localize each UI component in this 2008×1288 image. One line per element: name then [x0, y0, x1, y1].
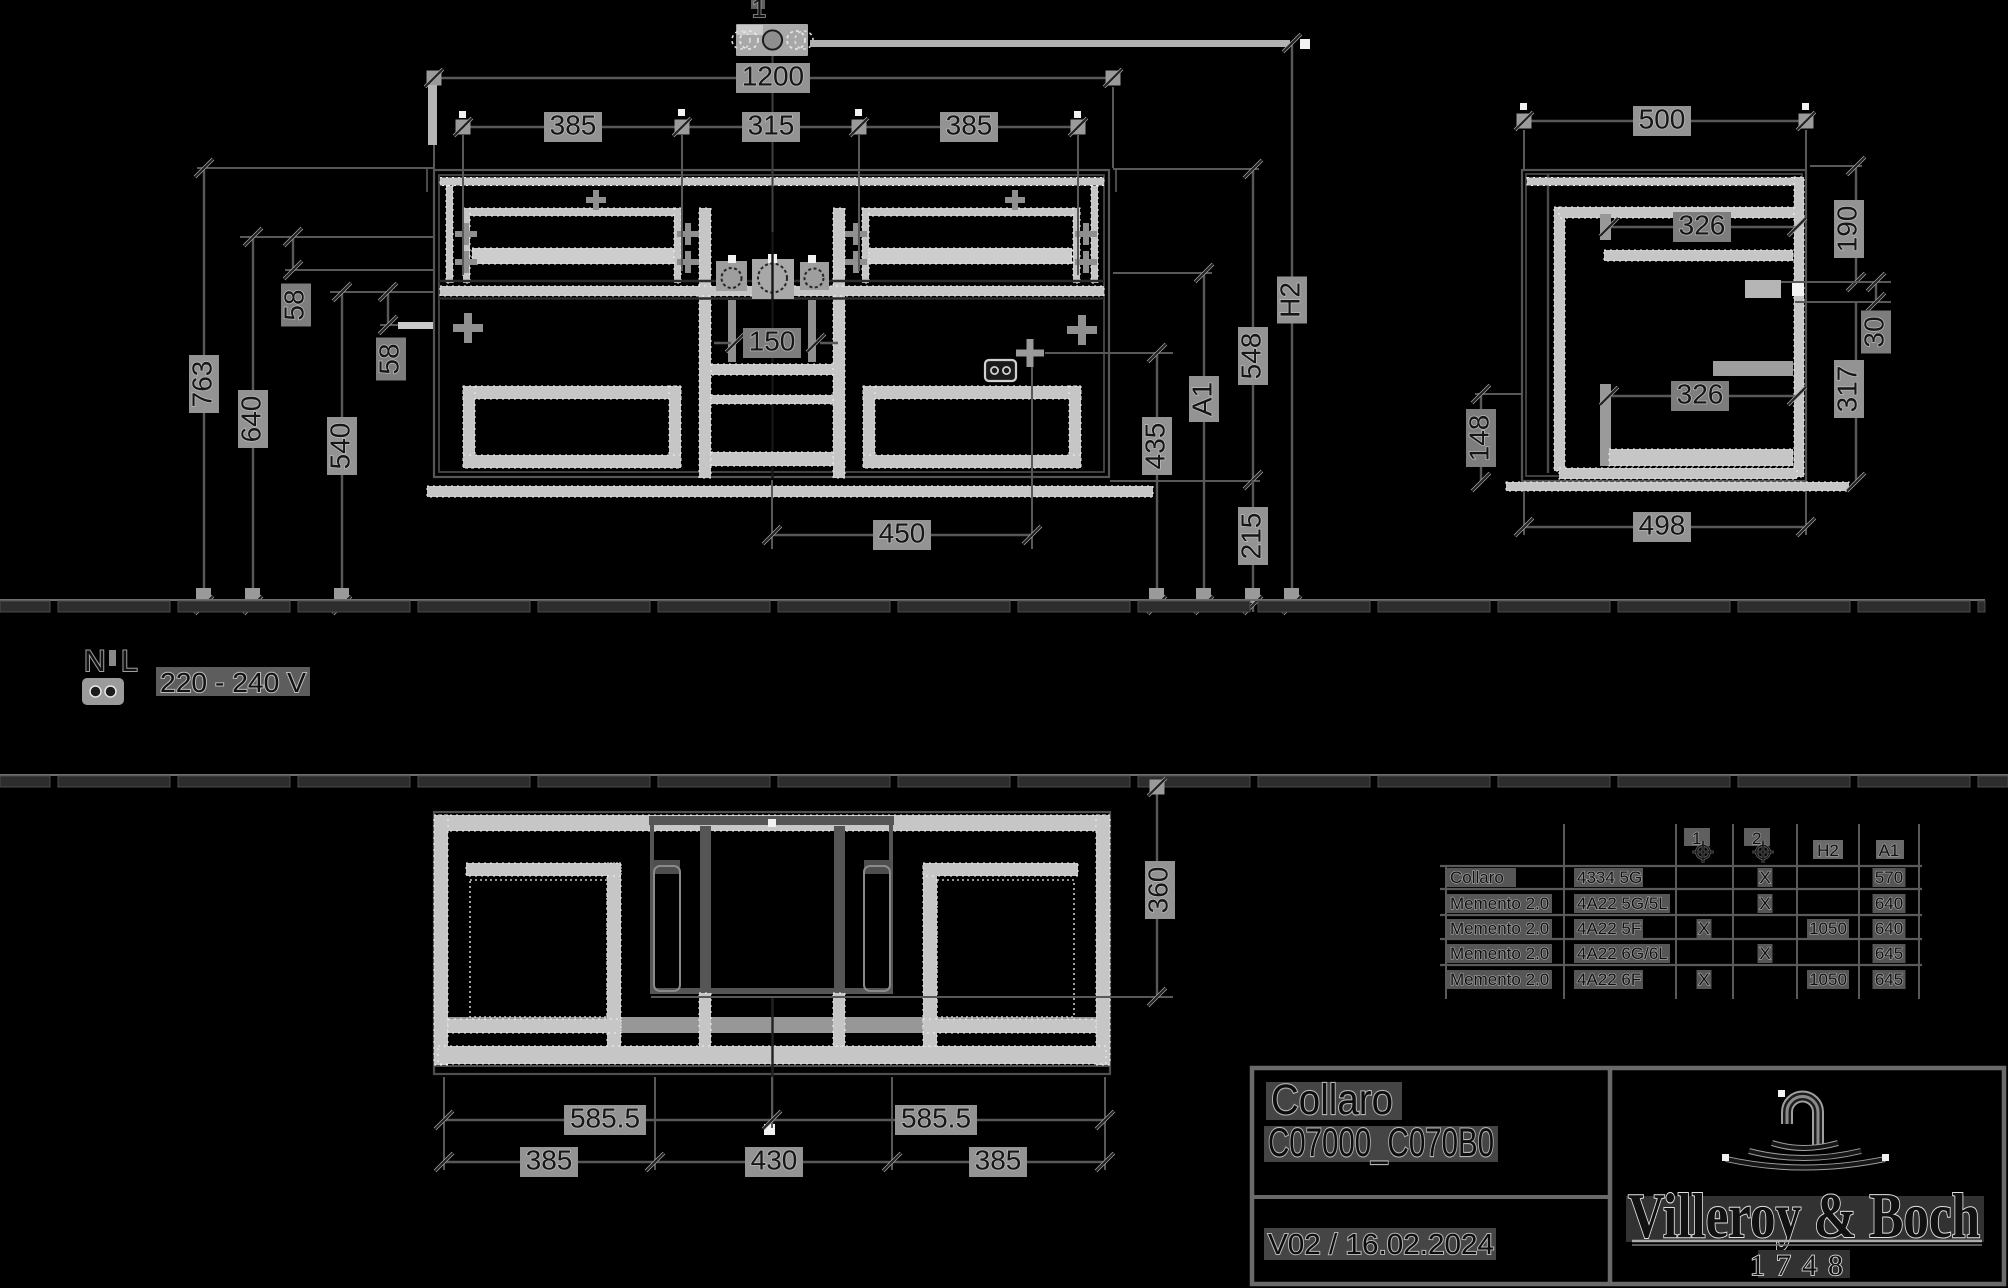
svg-text:C07000_C070B0: C07000_C070B0: [1268, 1121, 1494, 1165]
svg-text:H2: H2: [1275, 282, 1306, 318]
svg-text:L: L: [121, 645, 138, 678]
svg-text:385: 385: [975, 1145, 1022, 1176]
svg-text:540: 540: [325, 423, 356, 470]
svg-text:570: 570: [1875, 868, 1903, 887]
svg-text:4A22 6G/6L: 4A22 6G/6L: [1577, 944, 1668, 963]
svg-text:58: 58: [374, 343, 405, 374]
svg-text:4A22 6F: 4A22 6F: [1577, 970, 1641, 989]
svg-text:Collaro: Collaro: [1450, 868, 1504, 887]
svg-text:4A22 5F: 4A22 5F: [1577, 919, 1641, 938]
svg-text:Memento 2.0: Memento 2.0: [1450, 970, 1549, 989]
svg-text:190: 190: [1832, 206, 1863, 253]
svg-text:1050: 1050: [1809, 919, 1847, 938]
svg-text:148: 148: [1464, 415, 1495, 462]
svg-text:645: 645: [1875, 970, 1903, 989]
svg-text:H2: H2: [1817, 841, 1839, 860]
svg-text:645: 645: [1875, 944, 1903, 963]
svg-text:435: 435: [1140, 423, 1171, 470]
svg-text:220 - 240 V: 220 - 240 V: [160, 667, 306, 698]
svg-text:58: 58: [279, 289, 310, 320]
svg-text:4334 5G: 4334 5G: [1577, 868, 1642, 887]
svg-text:1748: 1748: [1750, 1249, 1854, 1282]
svg-text:430: 430: [751, 1145, 798, 1176]
svg-text:215: 215: [1236, 513, 1267, 560]
svg-text:585.5: 585.5: [901, 1103, 971, 1134]
svg-text:763: 763: [187, 361, 218, 408]
svg-text:385: 385: [526, 1145, 573, 1176]
svg-text:X: X: [1698, 919, 1709, 938]
svg-text:V02 / 16.02.2024: V02 / 16.02.2024: [1268, 1229, 1494, 1261]
svg-text:150: 150: [749, 326, 796, 357]
svg-text:X: X: [1759, 868, 1770, 887]
svg-text:A1: A1: [1187, 382, 1218, 416]
svg-text:585.5: 585.5: [570, 1103, 640, 1134]
svg-text:450: 450: [879, 518, 926, 549]
svg-text:640: 640: [1875, 894, 1903, 913]
svg-text:4A22 5G/5L: 4A22 5G/5L: [1577, 894, 1668, 913]
svg-text:548: 548: [1236, 333, 1267, 380]
svg-text:326: 326: [1677, 379, 1724, 410]
svg-text:326: 326: [1679, 210, 1726, 241]
svg-text:1: 1: [752, 0, 766, 23]
svg-text:X: X: [1698, 970, 1709, 989]
svg-text:640: 640: [236, 396, 267, 443]
svg-text:N: N: [84, 645, 106, 678]
svg-text:360: 360: [1143, 867, 1174, 914]
svg-text:1200: 1200: [742, 61, 804, 92]
svg-text:Memento 2.0: Memento 2.0: [1450, 894, 1549, 913]
svg-text:385: 385: [946, 110, 993, 141]
svg-text:640: 640: [1875, 919, 1903, 938]
svg-text:X: X: [1759, 894, 1770, 913]
svg-text:317: 317: [1832, 366, 1863, 413]
svg-text:498: 498: [1639, 510, 1686, 541]
svg-text:385: 385: [550, 110, 597, 141]
svg-text:Memento 2.0: Memento 2.0: [1450, 919, 1549, 938]
svg-text:Collaro: Collaro: [1271, 1076, 1393, 1124]
svg-text:315: 315: [748, 110, 795, 141]
svg-text:X: X: [1759, 944, 1770, 963]
svg-text:500: 500: [1639, 104, 1686, 135]
svg-text:30: 30: [1859, 316, 1890, 347]
svg-text:A1: A1: [1879, 841, 1900, 860]
svg-text:Memento 2.0: Memento 2.0: [1450, 944, 1549, 963]
svg-text:1050: 1050: [1809, 970, 1847, 989]
